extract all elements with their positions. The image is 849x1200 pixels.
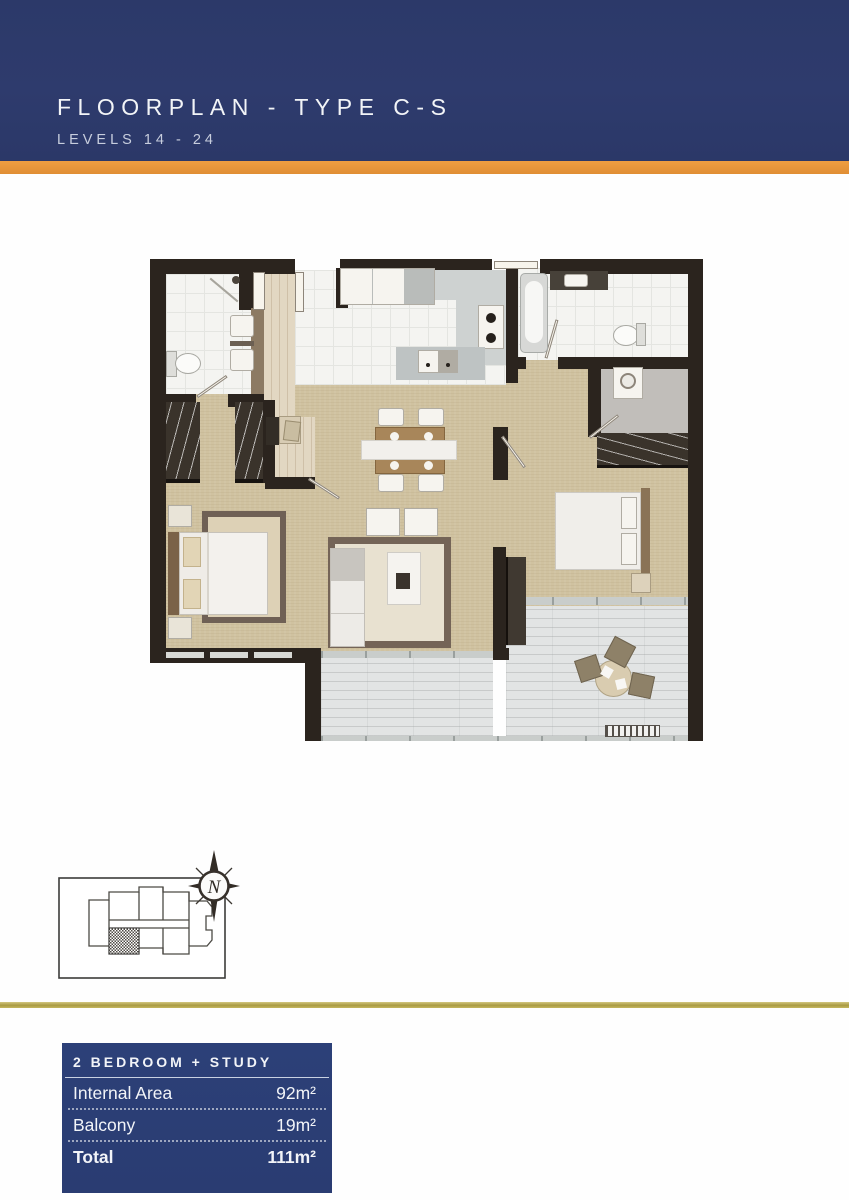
- row-label: Internal Area: [73, 1083, 172, 1104]
- row-value: 111m²: [267, 1147, 316, 1168]
- floorplan-image: [150, 257, 703, 749]
- balcony-chair-3: [628, 672, 655, 699]
- cooktop-burner-b: [486, 333, 496, 343]
- wall-laundry-left: [588, 360, 601, 437]
- unit-highlight: [109, 928, 139, 954]
- bed2-headboard: [641, 488, 650, 574]
- keyplan-diagram: N: [50, 843, 250, 988]
- toilet2-cistern: [636, 323, 646, 346]
- bed1-pillow-b: [183, 579, 201, 609]
- accent-stripe: [0, 161, 849, 174]
- vanity1-basin-b: [230, 349, 254, 371]
- wall-balcony-left: [305, 648, 321, 741]
- bed2-pillow-a: [621, 497, 637, 529]
- row-label: Balcony: [73, 1115, 135, 1136]
- kitchen-sink: [418, 350, 458, 373]
- brochure-page: FLOORPLAN - TYPE C-S LEVELS 14 - 24: [0, 0, 849, 1200]
- shower-head: [232, 276, 240, 284]
- bed1-headboard: [168, 532, 179, 615]
- table-row: Balcony 19m²: [62, 1110, 332, 1140]
- wall-junction-block: [493, 648, 509, 660]
- table-runner: [361, 440, 457, 460]
- study-desk: [266, 417, 279, 445]
- armchair-cushion-a: [366, 508, 400, 536]
- bed1-pillow-a: [183, 537, 201, 567]
- tv-cabinet: [506, 557, 526, 645]
- dining-chair-3: [378, 474, 404, 492]
- window-bedroom1-c: [254, 652, 292, 658]
- gold-divider: [0, 1002, 849, 1008]
- kitchen-upper-cabinets: [340, 268, 435, 305]
- page-subtitle: LEVELS 14 - 24: [57, 132, 217, 148]
- compass-north-label: N: [207, 877, 222, 898]
- sink-drain-b: [446, 363, 450, 367]
- area-summary-table: 2 BEDROOM + STUDY Internal Area 92m² Bal…: [62, 1043, 332, 1193]
- table-row-total: Total 111m²: [62, 1142, 332, 1172]
- row-value: 92m²: [276, 1083, 316, 1104]
- bedside2: [631, 573, 651, 593]
- wall-tv: [493, 547, 506, 655]
- armchair-cushion-b: [404, 508, 438, 536]
- window-bedroom2-balcony: [508, 597, 688, 605]
- balcony-drain-grate: [605, 725, 660, 737]
- coffee-table-book: [396, 573, 410, 589]
- wardrobe-bedroom2: [597, 433, 688, 468]
- window-bedroom1-a: [166, 652, 204, 658]
- toilet1-bowl: [175, 353, 201, 374]
- wardrobe-left: [166, 402, 200, 483]
- bed1-duvet: [207, 533, 267, 614]
- washing-machine-door: [620, 373, 636, 389]
- vanity1-basin-a: [230, 315, 254, 337]
- sink-drain-a: [426, 363, 430, 367]
- bedside1-a: [168, 505, 192, 527]
- balcony-table: [595, 660, 632, 697]
- wall-right: [688, 259, 703, 741]
- wall-bathroom1-shower: [239, 270, 253, 310]
- wall-bedroom2-stub: [493, 427, 508, 480]
- place-setting-2: [424, 432, 433, 441]
- wardrobe-right: [235, 402, 263, 483]
- dining-chair-4: [418, 474, 444, 492]
- place-setting-3: [390, 461, 399, 470]
- window-living-balcony: [321, 651, 493, 658]
- bed2-pillow-b: [621, 533, 637, 565]
- cooktop-burner-a: [486, 313, 496, 323]
- ensuite-basin: [564, 274, 588, 287]
- header-band: FLOORPLAN - TYPE C-S LEVELS 14 - 24: [0, 0, 849, 161]
- place-setting-1: [390, 432, 399, 441]
- sofa: [330, 548, 365, 647]
- bathroom1-inner-door: [253, 272, 265, 310]
- wall-kitchen-ensuite: [506, 268, 518, 383]
- vanity1-divider: [230, 341, 254, 346]
- dining-chair-2: [418, 408, 444, 426]
- balcony-floor-left: [321, 658, 493, 736]
- page-title: FLOORPLAN - TYPE C-S: [57, 94, 452, 121]
- row-value: 19m²: [276, 1115, 316, 1136]
- dining-chair-1: [378, 408, 404, 426]
- bathtub-inner: [525, 281, 543, 343]
- wall-top-a: [156, 259, 295, 274]
- kitchen-counter-top: [435, 270, 506, 300]
- wall-left: [150, 259, 166, 663]
- study-chair: [283, 420, 301, 442]
- wall-ensuite-bottom-a: [518, 357, 526, 369]
- window-bedroom1-b: [210, 652, 248, 658]
- place-setting-4: [424, 461, 433, 470]
- entry-door-hall: [295, 272, 304, 312]
- row-label: Total: [73, 1147, 114, 1168]
- table-row: Internal Area 92m²: [62, 1078, 332, 1108]
- bedside1-b: [168, 617, 192, 639]
- entry-door-main: [494, 261, 538, 269]
- table-title: 2 BEDROOM + STUDY: [62, 1043, 332, 1077]
